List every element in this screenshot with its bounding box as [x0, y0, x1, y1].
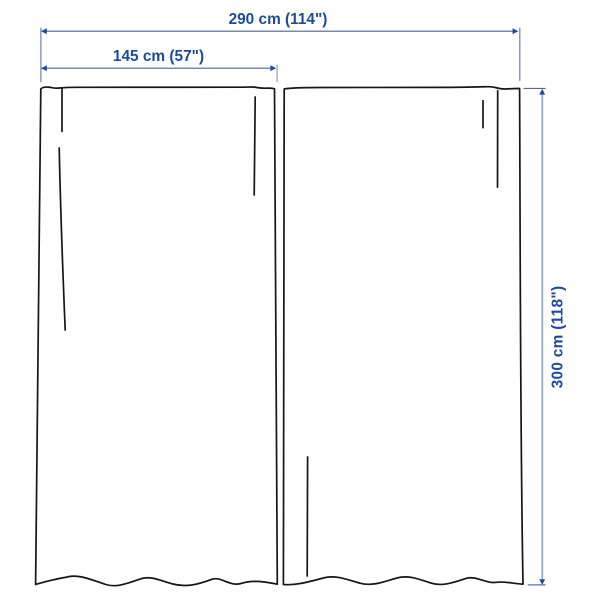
svg-text:290 cm (114"): 290 cm (114") [229, 11, 328, 28]
svg-text:145 cm (57"): 145 cm (57") [113, 48, 204, 65]
svg-text:300 cm (118"): 300 cm (118") [550, 286, 567, 389]
